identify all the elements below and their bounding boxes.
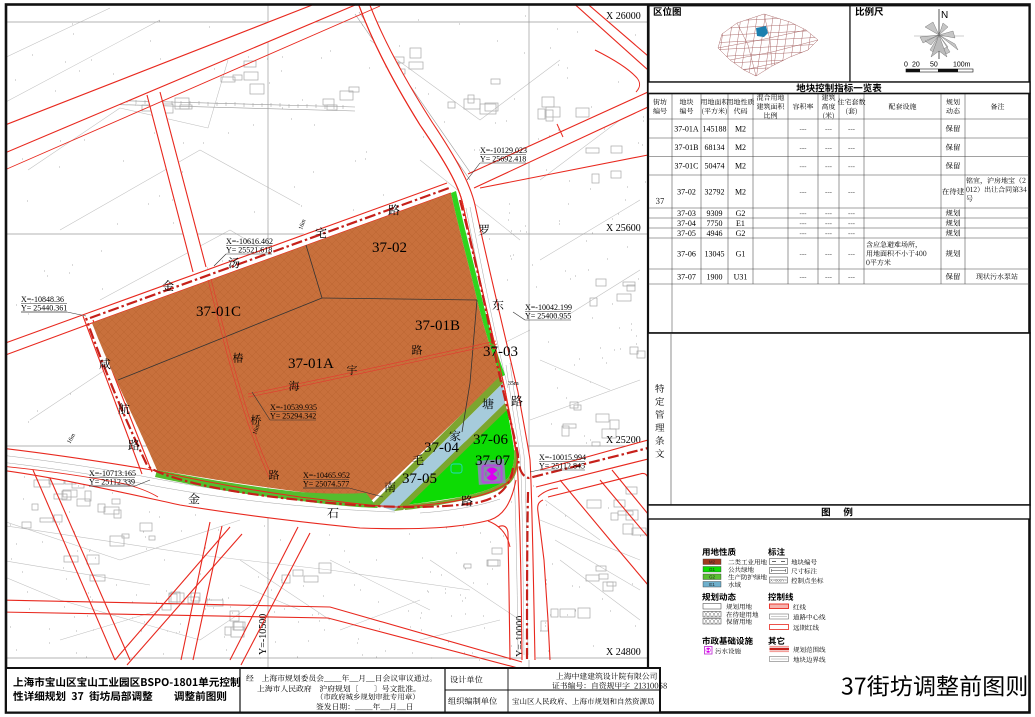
svg-text:---: --- [825, 273, 833, 281]
svg-text:---: --- [848, 273, 856, 281]
svg-text:13045: 13045 [705, 249, 725, 258]
svg-text:50: 50 [930, 62, 938, 69]
svg-text:0: 0 [904, 62, 908, 69]
svg-text:---: --- [800, 230, 808, 238]
svg-text:20: 20 [912, 62, 920, 69]
svg-text:50474: 50474 [705, 162, 725, 171]
svg-text:---: --- [825, 188, 833, 196]
svg-text:Y= 25294.342: Y= 25294.342 [270, 412, 316, 421]
svg-text:Y= 25112.845: Y= 25112.845 [539, 462, 585, 471]
svg-text:16m: 16m [298, 218, 307, 230]
svg-text:---: --- [800, 125, 808, 133]
svg-text:G1: G1 [736, 249, 746, 258]
svg-text:4946: 4946 [707, 229, 723, 238]
svg-text:---: --- [848, 188, 856, 196]
svg-text:---: --- [825, 230, 833, 238]
svg-text:Y= 25692.418: Y= 25692.418 [480, 155, 526, 164]
svg-text:---: --- [848, 230, 856, 238]
svg-text:E1: E1 [709, 582, 715, 587]
svg-text:X=000Y=: X=000Y= [770, 578, 787, 583]
svg-text:---: --- [800, 273, 808, 281]
svg-text:N: N [941, 10, 948, 21]
svg-text:Y= 25074.577: Y= 25074.577 [303, 480, 349, 489]
svg-text:37-01C: 37-01C [675, 162, 699, 171]
svg-text:---: --- [825, 220, 833, 228]
svg-text:M2: M2 [735, 187, 746, 196]
svg-text:X 24800: X 24800 [606, 647, 641, 658]
svg-text:E1: E1 [736, 219, 745, 228]
svg-text:---: --- [825, 125, 833, 133]
svg-text:U31: U31 [734, 272, 748, 281]
svg-text:35m: 35m [508, 381, 519, 387]
svg-text:37-01A: 37-01A [288, 356, 334, 372]
svg-text:---: --- [800, 220, 808, 228]
svg-text:37-01C: 37-01C [196, 304, 241, 320]
svg-text:---: --- [848, 125, 856, 133]
svg-text:M2: M2 [735, 124, 746, 133]
svg-text:37-03: 37-03 [483, 344, 518, 360]
svg-text:---: --- [825, 162, 833, 170]
svg-text:---: --- [800, 210, 808, 218]
svg-text:---: --- [848, 162, 856, 170]
svg-text:---: --- [848, 220, 856, 228]
svg-text:9309: 9309 [707, 209, 723, 218]
svg-text:Y= 25440.361: Y= 25440.361 [21, 304, 67, 313]
svg-text:16m: 16m [67, 432, 78, 445]
svg-text:---: --- [800, 188, 808, 196]
svg-text:37-04: 37-04 [424, 440, 459, 456]
svg-text:---: --- [848, 210, 856, 218]
svg-text:37-05: 37-05 [402, 471, 437, 487]
svg-text:---: --- [825, 210, 833, 218]
svg-text:X 26000: X 26000 [606, 11, 641, 22]
svg-text:Y=-10500: Y=-10500 [258, 614, 269, 655]
svg-text:37-06: 37-06 [677, 249, 696, 258]
svg-text:---: --- [800, 162, 808, 170]
svg-text:Y= 25400.955: Y= 25400.955 [525, 312, 571, 321]
svg-text:---: --- [848, 144, 856, 152]
svg-text:145188: 145188 [703, 124, 727, 133]
svg-text:37-07: 37-07 [677, 272, 696, 281]
svg-text:37-02: 37-02 [677, 187, 696, 196]
svg-text:1900: 1900 [707, 272, 723, 281]
svg-text:7750: 7750 [707, 219, 723, 228]
svg-text:M2: M2 [735, 143, 746, 152]
svg-text:37-01B: 37-01B [415, 318, 460, 334]
svg-text:37-05: 37-05 [677, 229, 696, 238]
svg-text:G2: G2 [709, 575, 716, 580]
svg-text:37-06: 37-06 [473, 432, 508, 448]
svg-text:100m: 100m [953, 62, 971, 69]
svg-text:M2: M2 [709, 560, 716, 565]
svg-text:68134: 68134 [705, 143, 725, 152]
svg-text:37-04: 37-04 [677, 219, 696, 228]
svg-text:37-02: 37-02 [372, 240, 407, 256]
svg-text:---: --- [800, 144, 808, 152]
svg-text:---: --- [825, 144, 833, 152]
svg-text:37-01B: 37-01B [675, 143, 699, 152]
svg-text:X 25600: X 25600 [606, 223, 641, 234]
svg-text:37-03: 37-03 [677, 209, 696, 218]
svg-text:Y= 25521.618: Y= 25521.618 [226, 246, 272, 255]
svg-text:Y= 25112.339: Y= 25112.339 [89, 478, 135, 487]
svg-text:---: --- [800, 250, 808, 258]
svg-text:G1: G1 [709, 567, 716, 572]
svg-text:M2: M2 [735, 162, 746, 171]
svg-text:---: --- [825, 250, 833, 258]
svg-text:32792: 32792 [705, 187, 725, 196]
svg-text:---: --- [848, 250, 856, 258]
svg-text:G2: G2 [736, 209, 746, 218]
svg-text:G2: G2 [736, 229, 746, 238]
svg-text:37-01A: 37-01A [674, 124, 699, 133]
svg-text:37-07: 37-07 [475, 453, 510, 469]
